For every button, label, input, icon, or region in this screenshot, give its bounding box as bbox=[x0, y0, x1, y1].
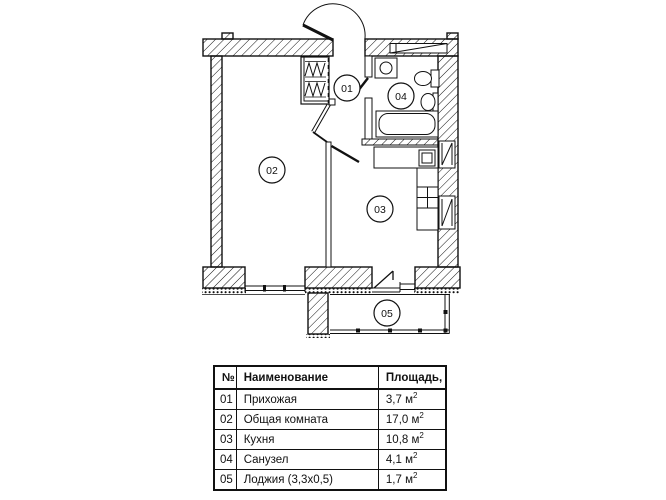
table-row: 04 Санузел 4,1 м2 bbox=[214, 450, 446, 470]
table-row: 03 Кухня 10,8 м2 bbox=[214, 430, 446, 450]
row-num: 02 bbox=[214, 410, 236, 430]
kitchen-door-leaf bbox=[332, 146, 360, 162]
room-number: 02 bbox=[266, 165, 278, 177]
row-name: Санузел bbox=[236, 450, 378, 470]
room-number: 03 bbox=[374, 204, 386, 216]
table-row: 05 Лоджия (3,3х0,5) 1,7 м2 bbox=[214, 470, 446, 491]
kitchen-window bbox=[400, 282, 415, 292]
entrance-door-leaf bbox=[303, 25, 333, 40]
bathroom-wall-lower bbox=[365, 98, 372, 139]
kitchen-sink-icon bbox=[419, 150, 435, 166]
row-area: 10,8 м2 bbox=[378, 430, 446, 450]
room-areas-table: № Наименование Площадь, м2 01 Прихожая 3… bbox=[213, 365, 447, 491]
room-number: 04 bbox=[395, 91, 407, 103]
row-name: Прихожая bbox=[236, 389, 378, 410]
room-number: 01 bbox=[341, 83, 353, 95]
header-num: № bbox=[214, 366, 236, 389]
bathroom-wall-upper bbox=[365, 56, 372, 77]
wardrobe-icon bbox=[301, 57, 329, 104]
superscript: 2 bbox=[413, 451, 417, 460]
vent-shaft-icon bbox=[439, 141, 455, 168]
row-num: 03 bbox=[214, 430, 236, 450]
bathtub-icon bbox=[376, 111, 438, 137]
wall-top-left bbox=[203, 39, 333, 56]
lintel-icon bbox=[390, 44, 447, 54]
washbasin-icon bbox=[421, 93, 438, 111]
room-label-01: 01 bbox=[334, 75, 360, 101]
header-name: Наименование bbox=[236, 366, 378, 389]
row-area: 17,0 м2 bbox=[378, 410, 446, 430]
wall-loggia-stub bbox=[308, 293, 328, 334]
living-room-door-leaf bbox=[313, 132, 327, 142]
balcony-door-leaf bbox=[374, 271, 393, 288]
room-label-02: 02 bbox=[259, 157, 285, 183]
living-room-window bbox=[245, 283, 305, 292]
superscript: 2 bbox=[419, 411, 423, 420]
row-name: Общая комната bbox=[236, 410, 378, 430]
wall-pier-bottom-middle bbox=[305, 267, 372, 288]
entrance-door bbox=[303, 4, 365, 40]
doorway-cap bbox=[329, 99, 335, 105]
vent-shaft-icon bbox=[439, 196, 455, 229]
wall-top-notch-right bbox=[447, 33, 458, 39]
floor-plan-page: 01 02 03 04 05 № Наим bbox=[0, 0, 666, 500]
room-label-05: 05 bbox=[374, 300, 400, 326]
wall-pier-bottom-left bbox=[203, 267, 245, 288]
superscript: 2 bbox=[419, 431, 423, 440]
row-name: Кухня bbox=[236, 430, 378, 450]
superscript: 2 bbox=[413, 391, 417, 400]
row-area: 1,7 м2 bbox=[378, 470, 446, 491]
room-number: 05 bbox=[381, 308, 393, 320]
room-label-04: 04 bbox=[388, 83, 414, 109]
row-num: 05 bbox=[214, 470, 236, 491]
table-header-row: № Наименование Площадь, м2 bbox=[214, 366, 446, 389]
header-area: Площадь, м2 bbox=[378, 366, 446, 389]
row-area: 3,7 м2 bbox=[378, 389, 446, 410]
row-num: 04 bbox=[214, 450, 236, 470]
table-row: 01 Прихожая 3,7 м2 bbox=[214, 389, 446, 410]
room-label-03: 03 bbox=[367, 196, 393, 222]
row-num: 01 bbox=[214, 389, 236, 410]
entrance-door-arc bbox=[303, 4, 365, 39]
washing-machine-icon bbox=[375, 58, 397, 78]
row-name: Лоджия (3,3х0,5) bbox=[236, 470, 378, 491]
balcony-door bbox=[372, 271, 400, 292]
superscript: 2 bbox=[413, 471, 417, 480]
table-row: 02 Общая комната 17,0 м2 bbox=[214, 410, 446, 430]
row-area: 4,1 м2 bbox=[378, 450, 446, 470]
toilet-icon bbox=[415, 70, 440, 87]
wall-top-notch-left bbox=[222, 33, 233, 39]
wall-left bbox=[211, 56, 222, 267]
wall-pier-bottom-right bbox=[415, 267, 460, 288]
partition-living-kitchen bbox=[326, 142, 331, 267]
wall-bathroom-bottom bbox=[362, 139, 438, 145]
hall-diagonal-wall bbox=[312, 103, 331, 132]
